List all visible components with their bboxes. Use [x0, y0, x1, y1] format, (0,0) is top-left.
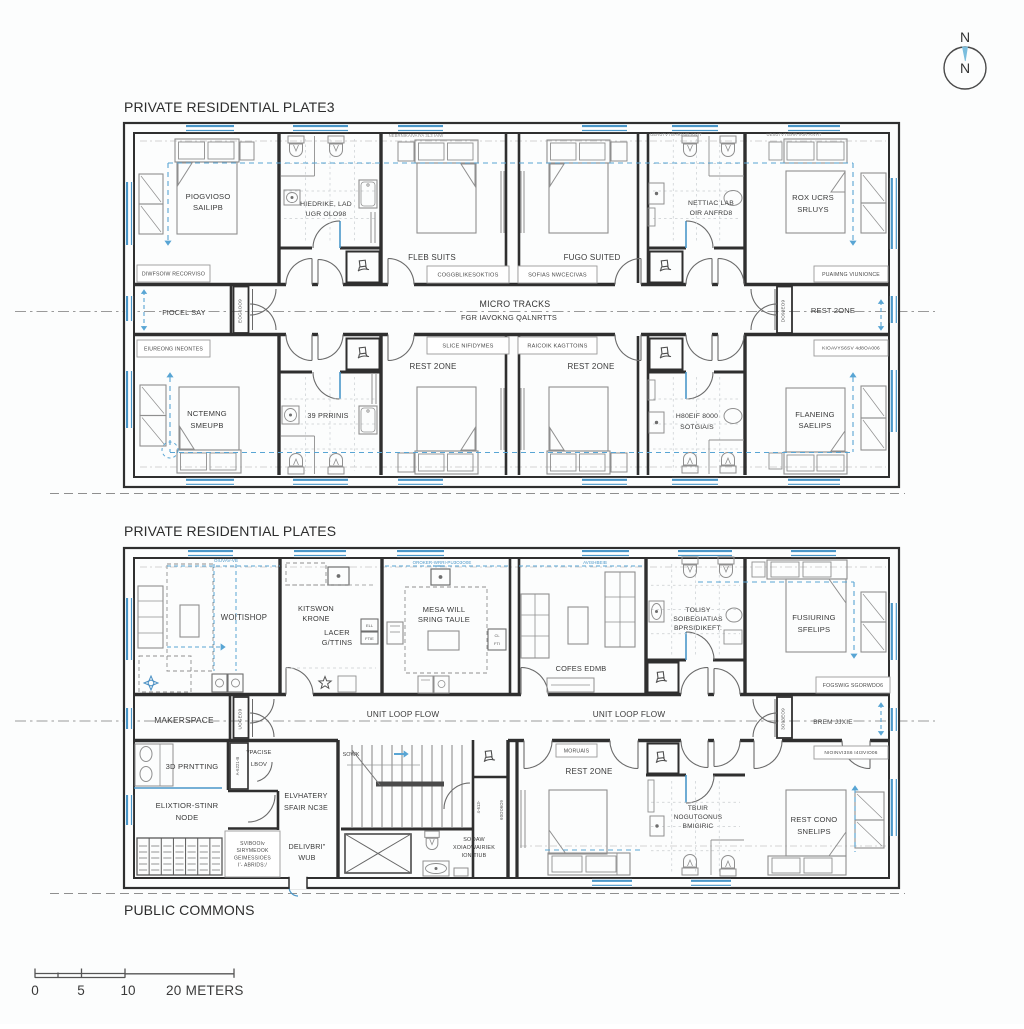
svg-text:PUBLIC COMMONS: PUBLIC COMMONS — [124, 902, 255, 918]
svg-text:REST 2ONE: REST 2ONE — [410, 362, 457, 371]
svg-text:SOIBEGIATIAS: SOIBEGIATIAS — [673, 616, 723, 623]
svg-text:COFES EDMB: COFES EDMB — [556, 664, 607, 673]
svg-text:DIWFSOIW RECORVISO: DIWFSOIW RECORVISO — [142, 271, 205, 277]
svg-text:EOG1OO9: EOG1OO9 — [238, 299, 243, 323]
svg-text:PUAIMNG VIUNIONCE: PUAIMNG VIUNIONCE — [822, 272, 880, 278]
svg-text:ELIXTIOR-STINR: ELIXTIOR-STINR — [156, 801, 219, 810]
svg-text:5: 5 — [77, 983, 85, 998]
svg-text:MORUAIS: MORUAIS — [564, 748, 590, 754]
svg-text:PRIVATE RESIDENTIAL PLATES: PRIVATE RESIDENTIAL PLATES — [124, 523, 336, 539]
svg-text:ELVHATERY: ELVHATERY — [284, 791, 327, 800]
svg-text:0: 0 — [31, 983, 39, 998]
svg-text:FTI: FTI — [494, 641, 500, 646]
svg-text:UNIT LOOP FLOW: UNIT LOOP FLOW — [367, 710, 440, 719]
svg-text:KIOAVYS6SV 4d8OA006: KIOAVYS6SV 4d8OA006 — [822, 346, 880, 352]
svg-text:SMEUPB: SMEUPB — [190, 421, 223, 430]
svg-text:REST 2ONE: REST 2ONE — [568, 362, 615, 371]
svg-text:SIRYMEOOK: SIRYMEOOK — [237, 848, 269, 854]
svg-text:NODE: NODE — [176, 813, 199, 822]
svg-text:N: N — [960, 29, 970, 45]
svg-text:SFAIR NC3E: SFAIR NC3E — [284, 803, 328, 812]
svg-text:3D PRNTTING: 3D PRNTTING — [166, 762, 219, 771]
svg-text:MAKERSPACE: MAKERSPACE — [154, 715, 214, 725]
svg-text:SAELIPS: SAELIPS — [798, 421, 831, 430]
svg-text:REST 2ONE: REST 2ONE — [811, 306, 855, 315]
svg-text:KRONE: KRONE — [302, 614, 329, 623]
svg-text:SVIBOOIv: SVIBOOIv — [240, 841, 265, 847]
svg-text:SOFIAS NWCECIVAS: SOFIAS NWCECIVAS — [528, 273, 587, 279]
svg-text:N: N — [960, 60, 970, 76]
svg-text:REST CONO: REST CONO — [791, 815, 838, 824]
svg-text:NETTIAC LAB: NETTIAC LAB — [688, 200, 734, 207]
svg-text:FIOCEL SAY: FIOCEL SAY — [162, 308, 206, 317]
svg-text:'/PACISE: '/PACISE — [246, 750, 271, 756]
svg-text:A-6221-B: A-6221-B — [235, 757, 240, 776]
svg-text:HIEDRIKE, LAD: HIEDRIKE, LAD — [300, 201, 352, 208]
svg-text:H80EIF 8000: H80EIF 8000 — [676, 413, 718, 420]
svg-text:SRLUYS: SRLUYS — [797, 205, 829, 214]
svg-text:3O93EO9: 3O93EO9 — [781, 708, 786, 730]
svg-text:SOWK: SOWK — [343, 752, 360, 758]
svg-text:OROKER-WRRI-PU3O3O0E: OROKER-WRRI-PU3O3O0E — [413, 560, 472, 565]
svg-text:I'- ABRIDS:/: I'- ABRIDS:/ — [238, 863, 267, 869]
svg-text:FUGO SUITED: FUGO SUITED — [564, 253, 621, 262]
svg-text:FOGSWIG SGORWDO6: FOGSWIG SGORWDO6 — [823, 683, 883, 689]
svg-text:BMIGIRIC: BMIGIRIC — [683, 823, 714, 830]
svg-text:RAICOIK KAGTTOINS: RAICOIK KAGTTOINS — [527, 344, 587, 350]
svg-text:TBUIR: TBUIR — [688, 805, 708, 812]
svg-text:XOIAOWAIRIEK: XOIAOWAIRIEK — [453, 845, 495, 851]
svg-text:UGR OLO98: UGR OLO98 — [306, 211, 347, 218]
svg-text:SAILIPB: SAILIPB — [193, 203, 223, 212]
svg-text:EIUREONG INEONTES: EIUREONG INEONTES — [144, 346, 203, 352]
svg-text:FGR IAVOKNG QALNRTTS: FGR IAVOKNG QALNRTTS — [461, 313, 557, 322]
svg-text:DO93EO9: DO93EO9 — [781, 299, 786, 322]
svg-text:FUSIURING: FUSIURING — [792, 613, 836, 622]
svg-text:BREM JJXIE: BREM JJXIE — [813, 719, 853, 726]
svg-text:WOITISHOP: WOITISHOP — [221, 613, 267, 622]
svg-text:SRING TAULE: SRING TAULE — [418, 615, 470, 624]
svg-text:OIUVAV-VB: OIUVAV-VB — [214, 558, 238, 563]
svg-text:NCTEMNG: NCTEMNG — [187, 409, 227, 418]
svg-text:SLICE NIFIDYMES: SLICE NIFIDYMES — [442, 344, 493, 350]
svg-text:COGGBLIKESOKTIOS: COGGBLIKESOKTIOS — [437, 273, 498, 279]
svg-text:PIOGVIOSO: PIOGVIOSO — [186, 192, 231, 201]
svg-text:SOOAW: SOOAW — [463, 837, 485, 843]
svg-text:OIR ANFRD8: OIR ANFRD8 — [690, 210, 733, 217]
svg-text:SOTGIAIS: SOTGIAIS — [680, 424, 714, 431]
svg-text:UERUTVTIS-IRIAIR-AIVIT: UERUTVTIS-IRIAIR-AIVIT — [650, 132, 702, 137]
svg-text:TOLISY: TOLISY — [685, 607, 711, 614]
svg-text:CL: CL — [494, 633, 500, 638]
svg-text:AVISHBEIB: AVISHBEIB — [583, 560, 607, 565]
svg-text:LACER: LACER — [324, 628, 350, 637]
svg-text:BPRSIDIKEFT:: BPRSIDIKEFT: — [674, 625, 722, 632]
svg-text:20 METERS: 20 METERS — [166, 983, 244, 998]
svg-text:GEIMESSIOES: GEIMESSIOES — [234, 855, 271, 861]
svg-text:SNELIPS: SNELIPS — [797, 827, 830, 836]
svg-text:FLEB SUITS: FLEB SUITS — [408, 253, 456, 262]
svg-text:39 PRRINIS: 39 PRRINIS — [307, 411, 348, 420]
svg-text:SFELIPS: SFELIPS — [798, 625, 831, 634]
svg-text:ELL: ELL — [366, 623, 374, 628]
svg-text:FLANEING: FLANEING — [795, 410, 835, 419]
svg-text:REST 2ONE: REST 2ONE — [566, 767, 613, 776]
svg-text:KITSWON: KITSWON — [298, 604, 334, 613]
svg-text:NEBRNIKAIVAIYA 3L3 IAIW: NEBRNIKAIVAIYA 3L3 IAIW — [389, 133, 444, 138]
svg-text:UOGEO9: UOGEO9 — [238, 708, 243, 729]
svg-text:UESUTVTISHR-IAIR-AIVHT: UESUTVTISHR-IAIR-AIVHT — [766, 132, 821, 137]
svg-text:6O9GO09: 6O9GO09 — [499, 800, 504, 820]
svg-text:4-613-: 4-613- — [476, 800, 481, 813]
svg-text:MESA WILL: MESA WILL — [423, 605, 466, 614]
svg-text:10: 10 — [120, 983, 135, 998]
svg-text:PRIVATE RESIDENTIAL PLATE3: PRIVATE RESIDENTIAL PLATE3 — [124, 99, 335, 115]
svg-text:NOGUTGONUS: NOGUTGONUS — [674, 814, 723, 821]
svg-text:ROX UCRS: ROX UCRS — [792, 193, 834, 202]
svg-text:NIOINVI3S6 I4I3VIO06: NIOINVI3S6 I4I3VIO06 — [824, 750, 877, 756]
svg-text:ION TIUB: ION TIUB — [462, 853, 487, 859]
svg-text:LBOV: LBOV — [251, 762, 267, 768]
svg-text:FTIE: FTIE — [365, 636, 374, 641]
svg-text:UNIT LOOP FLOW: UNIT LOOP FLOW — [593, 710, 666, 719]
svg-text:G/TTINS: G/TTINS — [322, 638, 353, 647]
svg-text:WUB: WUB — [298, 853, 315, 862]
svg-text:MICRO TRACKS: MICRO TRACKS — [480, 299, 551, 309]
svg-text:DELIVBRI”: DELIVBRI” — [289, 842, 326, 851]
